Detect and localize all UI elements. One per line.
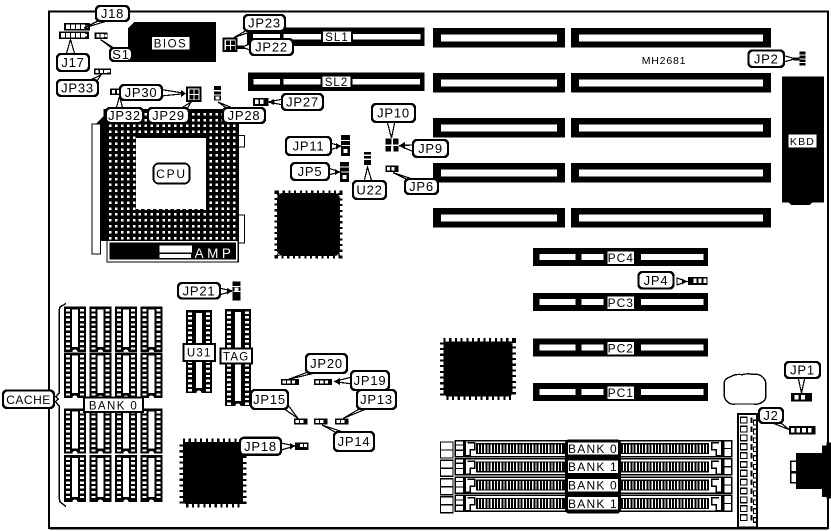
svg-text:U31: U31 — [187, 348, 212, 360]
svg-text:JP2: JP2 — [754, 51, 779, 66]
svg-text:JP1: JP1 — [790, 363, 815, 378]
svg-text:SL1: SL1 — [325, 32, 348, 44]
svg-text:BIOS: BIOS — [154, 39, 187, 51]
svg-text:JP5: JP5 — [298, 164, 323, 179]
svg-text:BANK 0: BANK 0 — [568, 479, 618, 493]
svg-text:CACHE: CACHE — [6, 393, 51, 407]
svg-text:JP23: JP23 — [248, 16, 281, 31]
svg-text:SL2: SL2 — [325, 77, 348, 89]
svg-text:JP9: JP9 — [418, 141, 443, 156]
svg-text:JP33: JP33 — [61, 81, 94, 96]
svg-text:BANK 0: BANK 0 — [89, 400, 138, 412]
svg-text:PC4: PC4 — [608, 251, 634, 265]
svg-text:CPU: CPU — [156, 167, 187, 181]
svg-text:PC1: PC1 — [608, 386, 634, 400]
svg-text:JP4: JP4 — [644, 273, 669, 288]
svg-text:J2: J2 — [763, 408, 778, 423]
svg-text:J18: J18 — [101, 6, 124, 21]
svg-text:JP6: JP6 — [409, 179, 434, 194]
svg-text:BANK 1: BANK 1 — [568, 460, 618, 474]
svg-text:BANK 0: BANK 0 — [568, 442, 618, 456]
svg-text:TAG: TAG — [223, 352, 249, 364]
svg-text:JP27: JP27 — [286, 95, 319, 110]
svg-text:JP29: JP29 — [152, 108, 185, 123]
svg-text:JP14: JP14 — [338, 434, 371, 449]
svg-text:JP32: JP32 — [108, 108, 141, 123]
svg-text:JP13: JP13 — [360, 392, 393, 407]
svg-text:PC2: PC2 — [608, 342, 634, 356]
svg-text:J17: J17 — [61, 55, 84, 70]
svg-text:JP28: JP28 — [228, 108, 261, 123]
svg-text:MH2681: MH2681 — [642, 55, 687, 67]
svg-text:BANK 1: BANK 1 — [568, 497, 618, 511]
svg-text:PC3: PC3 — [608, 296, 634, 310]
svg-text:U22: U22 — [356, 183, 382, 198]
svg-text:JP18: JP18 — [244, 439, 277, 454]
svg-text:AMP: AMP — [195, 246, 235, 261]
svg-text:S1: S1 — [112, 47, 130, 62]
svg-text:KBD: KBD — [790, 136, 815, 148]
svg-text:JP20: JP20 — [310, 356, 343, 371]
svg-text:JP22: JP22 — [255, 40, 288, 55]
svg-text:JP21: JP21 — [183, 283, 216, 298]
svg-text:JP11: JP11 — [293, 139, 325, 154]
svg-text:JP19: JP19 — [354, 373, 387, 388]
svg-text:JP15: JP15 — [253, 392, 286, 407]
svg-text:JP10: JP10 — [377, 106, 410, 121]
svg-text:JP30: JP30 — [125, 85, 158, 100]
